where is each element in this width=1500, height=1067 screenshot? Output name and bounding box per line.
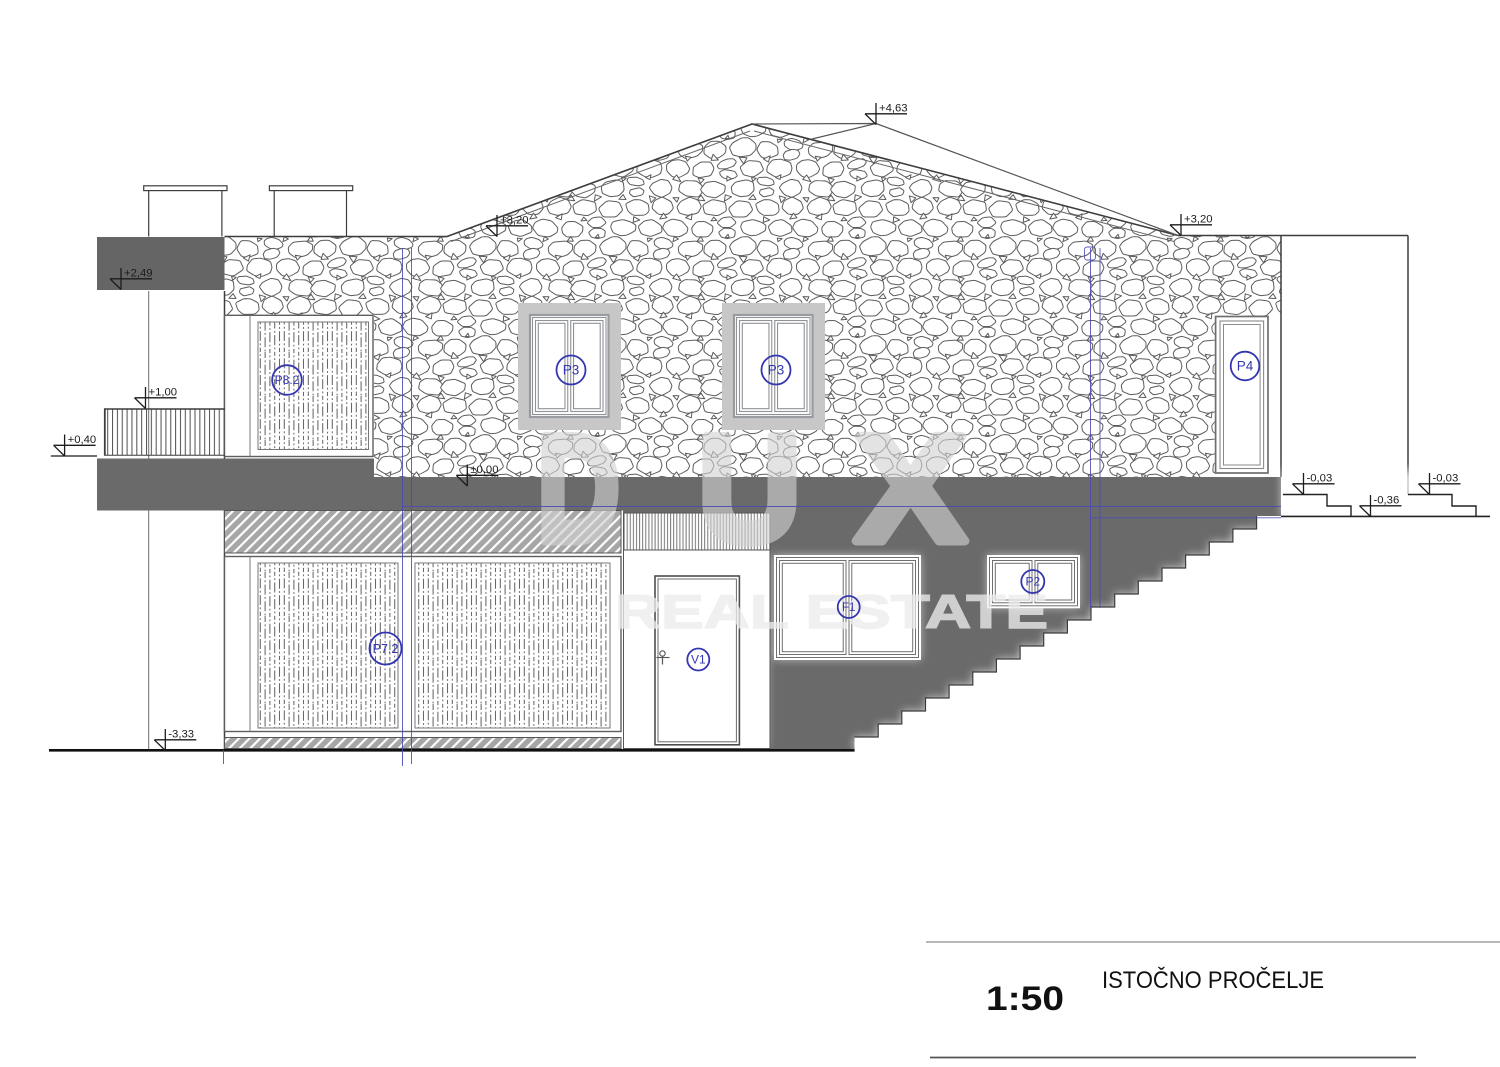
- svg-text:1:50: 1:50: [986, 980, 1064, 1018]
- svg-text:V1: V1: [691, 653, 706, 667]
- svg-text:P3: P3: [768, 363, 785, 378]
- svg-text:+1,00: +1,00: [149, 387, 178, 399]
- svg-text:+2,49: +2,49: [124, 268, 153, 280]
- svg-text:-0,03: -0,03: [1307, 473, 1333, 485]
- svg-text:REAL ESTATE: REAL ESTATE: [615, 585, 1048, 638]
- svg-text:-0,36: -0,36: [1374, 495, 1400, 507]
- svg-text:-0,03: -0,03: [1433, 473, 1459, 485]
- svg-text:U: U: [698, 404, 801, 574]
- svg-text:X: X: [855, 404, 966, 574]
- svg-text:-3,33: -3,33: [168, 729, 194, 741]
- svg-text:±0,00: ±0,00: [470, 464, 498, 476]
- svg-text:D: D: [537, 404, 620, 574]
- svg-text:+3,20: +3,20: [1184, 214, 1213, 226]
- svg-text:P4: P4: [1237, 359, 1254, 374]
- svg-text:F1: F1: [842, 602, 855, 614]
- svg-text:P8.2: P8.2: [275, 373, 300, 387]
- svg-text:P7.2: P7.2: [373, 642, 399, 656]
- svg-text:+4,63: +4,63: [879, 103, 908, 115]
- svg-text:ISTOČNO PROČELJE: ISTOČNO PROČELJE: [1102, 966, 1324, 994]
- svg-text:+3,20: +3,20: [500, 215, 529, 227]
- svg-text:P3: P3: [563, 363, 580, 378]
- svg-text:+0,40: +0,40: [68, 434, 97, 446]
- svg-text:P2: P2: [1025, 575, 1040, 589]
